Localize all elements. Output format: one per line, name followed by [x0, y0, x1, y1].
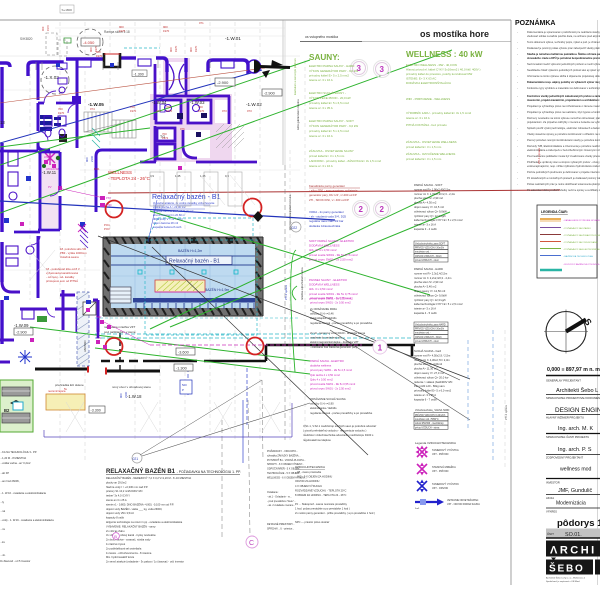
svg-text:VÝKON GENERÁTOR PARY - 9,0 kW: VÝKON GENERÁTOR PARY - 9,0 kW [309, 69, 358, 73]
svg-text:1: 1 [378, 343, 383, 353]
svg-text:1,45: 1,45 [175, 174, 181, 178]
svg-text:prívodny kábel E> 5 x 6,5 mm2: prívodny kábel E> 5 x 6,5 mm2 [309, 101, 349, 105]
svg-text:-1.W.01: -1.W.01 [225, 36, 241, 41]
svg-text:-: - [517, 87, 518, 90]
svg-text:-: - [517, 139, 518, 142]
svg-text:C: C [249, 540, 254, 547]
svg-text:Dokumentácia je spracovaná v p: Dokumentácia je spracovaná v podrobnosti… [527, 30, 600, 34]
svg-text:kapacity 8 osôb: kapacity 8 osôb [106, 516, 125, 520]
svg-text:prívod svetla SW01 - 2x 0,75 m: prívod svetla SW01 - 2x 0,75 mm2 [310, 296, 352, 300]
svg-text:2x mlln'as d'abu: 2x mlln'as d'abu [106, 529, 125, 533]
svg-text:-: - [517, 161, 518, 164]
svg-text:PARNÁ SAUNA - ELEKTRO: PARNÁ SAUNA - ELEKTRO [310, 359, 344, 363]
svg-text:objemt vody VN1 3,5m3: objemt vody VN1 3,5m3 [106, 511, 134, 515]
svg-text:ODVOD ZA HODINU: ODVOD ZA HODINU [295, 479, 319, 483]
svg-text:Ing. arch. M. K: Ing. arch. M. K [558, 426, 593, 432]
svg-text:PARNÁ SAUNA - SOFT: PARNÁ SAUNA - SOFT [414, 183, 443, 187]
svg-text:SPRCHY - 8 X OBJEM VÝMENY...: SPRCHY - 8 X OBJEM VÝMENY... [267, 463, 304, 466]
svg-text:- ak.1 - Ovladanie - m...: - ak.1 - Ovladanie - m... [267, 495, 292, 498]
svg-text:Pierový potreban nosnými konšt: Pierový potreban nosnými konštrukciami s… [527, 138, 600, 142]
svg-text:TANIEROVÝ VYÚSTKA: TANIEROVÝ VYÚSTKA [432, 449, 459, 452]
svg-text:prístrojová manipulačná rovina: prístrojová manipulačná rovina [288, 194, 292, 230]
svg-text:Pri odovzdaní diela predložiť: Pri odovzdaní diela predložiť všetky rev… [527, 188, 600, 192]
svg-text:- BAZÉNOVÁ TECHNOLÓGIA: - BAZÉNOVÁ TECHNOLÓGIA [563, 255, 593, 258]
svg-text:prívod kábel E> 3 x 1,5 mm: prívod kábel E> 3 x 1,5 mm [406, 145, 442, 149]
svg-text:PV: PV [48, 185, 52, 189]
svg-text:...ns: ...ns [0, 528, 6, 531]
svg-text:pôdorys 1.PP: pôdorys 1.PP [557, 518, 600, 529]
svg-text:SOFT PARNÁ SAUNA - ELEKTRO: SOFT PARNÁ SAUNA - ELEKTRO [309, 239, 355, 243]
svg-text:-: - [517, 183, 518, 186]
svg-text:rozmer int I> 4,30x2,70 / 2,3: rozmer int I> 4,30x2,70 / 2,3m [414, 358, 451, 362]
svg-text:kapacita bazéna 8 osôb: kapacita bazéna 8 osôb [153, 225, 182, 229]
svg-text:-: - [517, 133, 518, 136]
svg-text:...ks: ...ks [0, 540, 5, 544]
svg-text:Spoločnosť je zapísaná v OR Me: Spoločnosť je zapísaná v OR Med. [546, 580, 580, 583]
svg-text:Nezrovnalosti medzi výkresmi j: Nezrovnalosti medzi výkresmi jednotlivýc… [527, 62, 600, 66]
svg-text:- ROZVODY BAZÉNOVEJ TECHNOLÓGI: - ROZVODY BAZÉNOVEJ TECHNOLÓGIE [563, 263, 600, 266]
svg-text:ističe gabriel elent cisterna: ističe gabriel elent cisterna [296, 99, 300, 130]
svg-text:pod palištiadom v stene: pod palištiadom v stene [104, 330, 136, 334]
svg-text:4 X OBJEM VÝDUCHU: 4 X OBJEM VÝDUCHU [295, 484, 322, 488]
svg-text:-2.900: -2.900 [217, 80, 229, 85]
svg-text:DESIGN ENGIN: DESIGN ENGIN [555, 407, 600, 414]
svg-text:dodávka wellness: dodávka wellness [310, 364, 332, 368]
svg-text:regulátor tlaku max 3/2 bar: regulátor tlaku max 3/2 bar [309, 219, 343, 223]
svg-text:B2: B2 [4, 408, 10, 413]
svg-text:- POŽIADAVKY NA STAVBU: - POŽIADAVKY NA STAVBU [563, 227, 591, 230]
svg-text:520: 520 [182, 383, 187, 387]
svg-text:1970: 1970 [119, 29, 126, 33]
svg-text:1970: 1970 [198, 109, 205, 113]
svg-text:priehradka EU sklene: priehradka EU sklene [55, 383, 84, 387]
svg-text:Legenda VZDUCHOTECHNIKA: Legenda VZDUCHOTECHNIKA [415, 441, 456, 445]
svg-text:1970: 1970 [58, 111, 65, 115]
svg-text:-4.050: -4.050 [83, 40, 95, 45]
svg-text:- odoslanie čas čiastená gener: - odoslanie čas čiastená generátor pary [310, 345, 358, 349]
svg-text:-1.W.11: -1.W.11 [42, 170, 57, 175]
svg-text:2: 2 [380, 205, 385, 214]
svg-text:objem sauny V> 12,50 m3: objem sauny V> 12,50 m3 [414, 289, 446, 293]
svg-text:-: - [517, 111, 518, 114]
svg-text:Kanalizácia parny generátor: Kanalizácia parny generátor [309, 184, 345, 188]
svg-text:...ab FP: ...ab FP [0, 471, 9, 475]
svg-text:- ak. 2 ovladanie merané...: - ak. 2 ovladanie merané... [267, 504, 296, 507]
svg-text:istenie a> 3 x 16 A: istenie a> 3 x 16 A [406, 116, 430, 120]
svg-text:prívodny kábel E> 5 x 2,5 mm2: prívodny kábel E> 5 x 2,5 mm2 [309, 129, 349, 133]
svg-text:1972: 1972 [162, 136, 169, 140]
svg-text:2x dvoch lavice - vysavač, núr: 2x dvoch lavice - vysavač, núrdta vody [106, 538, 151, 542]
svg-text:prietory S1 10,2 m3/h/230V 3/N: prietory S1 10,2 m3/h/230V 3/N [106, 489, 142, 493]
svg-text:odvod 250/320 - medzistrop: odvod 250/320 - medzistrop [415, 422, 444, 425]
svg-text:VZT - ODVOD PARNA SAUNA: VZT - ODVOD PARNA SAUNA [447, 503, 480, 506]
svg-text:DODÁVKA ELEKTROINŠTALÁCIA: DODÁVKA ELEKTROINŠTALÁCIA [406, 80, 451, 85]
svg-text:...ná: ...ná [0, 509, 6, 513]
svg-text:Rozmery nevsledné na tomto výk: Rozmery nevsledné na tomto výkrese nemož… [527, 116, 600, 120]
svg-text:- POŽIADAVKY NA VYKUROVANIE: - POŽIADAVKY NA VYKUROVANIE [563, 241, 598, 244]
svg-text:plochy an 29,0m2: plochy an 29,0m2 [106, 480, 127, 484]
svg-text:Pas profil L20 - 80kg sam.: Pas profil L20 - 80kg sam. [414, 384, 445, 388]
svg-text:Ing. arch. P. S: Ing. arch. P. S [558, 447, 592, 453]
svg-text:BAZÉN H=1,2m: BAZÉN H=1,2m [178, 248, 202, 253]
svg-text:PO3: PO3 [104, 227, 110, 231]
svg-text:objem sauny V> 10,5 m3: objem sauny V> 10,5 m3 [414, 205, 444, 209]
svg-text:- zh - studená voda 3/4', D25: - zh - studená voda 3/4', D25 [309, 215, 346, 219]
svg-text:Dokumentáciu resp. нápisy polo: Dokumentáciu resp. нápisy položky vo výk… [527, 80, 600, 84]
svg-text:SPRCHA I., II. - priestor...: SPRCHA I., II. - priestor... [267, 527, 294, 530]
svg-text:ODSÁVANIE SUCHÁ SAUNA: ODSÁVANIE SUCHÁ SAUNA [310, 397, 346, 401]
svg-text:istenie a> 3 x 16 A: istenie a> 3 x 16 A [309, 164, 333, 168]
svg-text:NPC --- priestor právo otvárať: NPC --- priestor právo otvárať [295, 520, 329, 524]
svg-text:riešenie > sálavé (bad/400V 3/: riešenie > sálavé (bad/400V 3/N [414, 380, 452, 384]
svg-text:ELEKTRO SUCHÁ SAUNY -: ELEKTRO SUCHÁ SAUNY - [309, 91, 346, 95]
svg-text:1 hod. počas prevádzke a po pr: 1 hod. počas prevádzke a po prevádzke 1 … [295, 507, 350, 511]
svg-text:prívod svetla SW01 - 3E 5x 0,7: prívod svetla SW01 - 3E 5x 0,75 mm2 [309, 292, 358, 296]
svg-text:rýchlosť pary Q> 12,3 kg/h: rýchlosť pary Q> 12,3 kg/h [414, 214, 446, 218]
svg-text:900: 900 [89, 47, 93, 52]
svg-text:JAVISKO: JAVISKO [83, 340, 87, 352]
svg-text:kábel technológia CYKY E> 5 x: kábel technológia CYKY E> 5 x 2,5 mm2 [414, 302, 463, 306]
svg-text:regulácia časová - počas preva: regulácia časová - počas prevažizky a po… [310, 321, 373, 325]
svg-text:-2.900: -2.900 [16, 331, 27, 335]
svg-text:kábel technológia CYKY E> 5 x: kábel technológia CYKY E> 5 x 2,5 mm2 [414, 218, 463, 222]
svg-text:VÝKON GENERÁTOR PARY - 9,0 kW: VÝKON GENERÁTOR PARY - 9,0 kW [309, 124, 358, 128]
svg-text:Projektant je vyhradzuje právo: Projektant je vyhradzuje právo na realiz… [527, 110, 600, 114]
svg-text:Informácia na tomto výkrese sl: Informácia na tomto výkrese slúžia k obj… [527, 74, 600, 78]
svg-text:Projektant je vyhradzuje právo: Projektant je vyhradzuje právo na rozhod… [527, 104, 600, 108]
svg-text:P: P [182, 388, 184, 392]
svg-text:2x podrhlašková sel osvietlaňa: 2x podrhlašková sel osvietlaňa [106, 546, 142, 550]
svg-text:1970: 1970 [194, 45, 198, 52]
svg-text:DODÁVKA WELLNESS: DODÁVKA WELLNESS [309, 283, 340, 287]
svg-text:Pozície jednotlivých predmetov: Pozície jednotlivých predmetov je defino… [527, 170, 600, 174]
svg-text:Dodávateľ je povinný pošas výk: Dodávateľ je povinný pošas výkonu prác z… [527, 46, 600, 50]
svg-text:Tento dokument výkres, technic: Tento dokument výkres, technický popis, … [527, 40, 600, 44]
svg-text:rozmer int I> 1,76x2,30 /2,3: rozmer int I> 1,76x2,30 /2,3 - 2,4m [414, 192, 456, 196]
svg-text:-1.300: -1.300 [134, 73, 144, 77]
svg-text:-2.900: -2.900 [264, 92, 275, 96]
svg-text:odľučky S.H.+=2,46: odľučky S.H.+=2,46 [310, 312, 334, 316]
svg-text:-: - [517, 127, 518, 130]
svg-text:prívod svetla SW01 - 3E 5x 0,7: prívod svetla SW01 - 3E 5x 0,75 mm2 [309, 253, 358, 257]
svg-text:-: - [517, 105, 518, 108]
svg-text:prívod vzpru SW01 - 2x 0,50 mm: prívod vzpru SW01 - 2x 0,50 mm2 [310, 301, 351, 305]
svg-text:nový otvor v obvodovej stene: nový otvor v obvodovej stene [112, 385, 151, 389]
svg-text:medzistor vzduchotechnika odve: medzistor vzduchotechnika odvetranie med… [303, 433, 374, 437]
svg-text:2x ODSÁVANIE PARA: 2x ODSÁVANIE PARA [310, 307, 337, 311]
svg-text:ČNIT: ČNIT [547, 531, 554, 536]
svg-text:regulovateľnou klapkou: regulovateľnou klapkou [303, 438, 331, 442]
svg-text:- pred prevádzkou "biele"...: - pred prevádzkou "biele"... [267, 500, 296, 503]
svg-text:množstvo vzd. -: množstvo vzd. - [415, 332, 431, 335]
svg-text:-: - [517, 177, 518, 180]
svg-text:071: 071 [199, 21, 204, 25]
svg-text:WELLNESS - 6 X OBJEM VÝMENY...: WELLNESS - 6 X OBJEM VÝMENY... [267, 476, 307, 479]
svg-text:Pri dosiahnutých a montážnych: Pri dosiahnutých a montážnych prácach je… [527, 176, 600, 180]
svg-text:...Jo.: ...Jo. [0, 553, 6, 557]
svg-text:istenie a> 3 x 35 A: istenie a> 3 x 35 A [309, 106, 333, 110]
svg-text:plocha A> 11,30 m2: plocha A> 11,30 m2 [414, 367, 438, 371]
svg-text:prívodny kábel E> 5 x 2,5 mm2: prívodny kábel E> 5 x 2,5 mm2 [309, 74, 349, 78]
svg-text:odľučky S.H.+=2,90: odľučky S.H.+=2,90 [310, 402, 334, 406]
svg-text:Pri ... Stakopruď - sauna nesm: Pri ... Stakopruď - sauna nesmiete prevá… [295, 502, 348, 506]
svg-text:PRÍVOD VZDUCHU 30m3/h: PRÍVOD VZDUCHU 30m3/h [415, 328, 445, 331]
svg-text:DODÁVKA WELLNESS: DODÁVKA WELLNESS [309, 244, 340, 248]
svg-text:Rampa sklon 1:18: Rampa sklon 1:18 [104, 30, 130, 34]
svg-text:kapacita 6 - 7 osôb: kapacita 6 - 7 osôb [414, 397, 437, 401]
svg-text:výhrievací výkon Q> 9,0kW: výhrievací výkon Q> 9,0kW [414, 293, 447, 297]
svg-text:Počas realizačných prác je nut: Počas realizačných prác je nutné dodržia… [527, 182, 600, 186]
svg-text:-: - [517, 63, 518, 66]
svg-text:VODA - 2x parny generátor: VODA - 2x parny generátor [309, 210, 344, 214]
svg-text:Ovladanie:: Ovladanie: [267, 491, 279, 494]
svg-text:900: 900 [169, 47, 173, 52]
svg-text:SAUNY:: SAUNY: [309, 53, 340, 62]
svg-text:POZNÁMKA: POZNÁMKA [515, 18, 555, 27]
svg-text:2TI-1 oprava: 2TI-1 oprava [537, 148, 541, 164]
svg-text:rozmer ext R> 2,3x2,4/2,5m: rozmer ext R> 2,3x2,4/2,5m [414, 271, 448, 275]
svg-text:projektantom. Za prípadné odch: projektantom. Za prípadné odchýlky v mer… [527, 120, 600, 124]
svg-text:- POŽIADAVKY NA ZDRAVOTECHNIKU: - POŽIADAVKY NA ZDRAVOTECHNIKU [563, 234, 600, 237]
svg-text:ATE1: ATE1 [44, 155, 51, 159]
svg-text:VÝKRES: VÝKRES [546, 510, 557, 514]
svg-text:stenie an 3 x 25 A: stenie an 3 x 25 A [106, 498, 127, 502]
svg-text:osadenie do zariadený vzt: osadenie do zariadený vzt [310, 336, 341, 340]
svg-text:2x sensť atrakcie (ovladanie -: 2x sensť atrakcie (ovladanie - 3x palozo… [106, 560, 184, 564]
svg-text:prívod VZDUCH - otvor: prívod VZDUCH - otvor [415, 340, 439, 343]
svg-text:prívodný kábel do priestoru, p: prívodný kábel do priestoru, polohy konz… [406, 72, 473, 76]
svg-text:SM2: SM2 [96, 315, 102, 319]
svg-text:-1.X.02: -1.X.02 [44, 75, 59, 80]
svg-text:Kontrolóre všetky jednotlivých: Kontrolóre všetky jednotlivých zabudovan… [527, 94, 600, 98]
svg-text:ŠEBO: ŠEBO [549, 562, 585, 575]
svg-text:-: - [517, 117, 518, 120]
svg-text:istenie a> 3 x 16 A: istenie a> 3 x 16 A [414, 307, 436, 311]
svg-text:1970: 1970 [174, 45, 178, 52]
svg-text:výhrievací výkon Q> 20,0 kw: výhrievací výkon Q> 20,0 kw [414, 375, 448, 379]
svg-text:množstvo vzd. 75/50°C: množstvo vzd. 75/50°C [415, 418, 439, 421]
svg-text:LADIOPAD - prívodny kábel - ZÁ: LADIOPAD - prívodny kábel - ZÁSUVKA E> 3… [309, 159, 381, 163]
svg-text:-: - [517, 81, 518, 84]
svg-text:SUCHÁ SAUNA - hard: SUCHÁ SAUNA - hard [414, 349, 442, 353]
svg-text:PITNÁ FONTÁNA - bez prívodu: PITNÁ FONTÁNA - bez prívodu [406, 123, 447, 127]
svg-text:rýchlosť pary Q> 12,3 kg/h: rýchlosť pary Q> 12,3 kg/h [414, 298, 446, 302]
svg-text:ELEKTRO PARNA SAUNY - HARD: ELEKTRO PARNA SAUNY - HARD [309, 64, 354, 68]
svg-text:ZTI-1 oprava: ZTI-1 oprava [284, 285, 288, 300]
svg-text:PO1: PO1 [94, 167, 100, 171]
svg-text:prívod vzpru SW01 - 2x 2,50 mm: prívod vzpru SW01 - 2x 2,50 mm2 [310, 387, 351, 391]
svg-text:-: - [517, 155, 518, 158]
svg-text:množstvo vzd. -: množstvo vzd. - [415, 251, 431, 254]
svg-text:prívod kábel E> 3 x 1,5 mm: prívod kábel E> 3 x 1,5 mm [406, 157, 442, 161]
svg-text:istenie a> 3 x 35 A: istenie a> 3 x 35 A [414, 393, 436, 397]
svg-text:074: 074 [156, 109, 161, 113]
svg-text:izolačná sauna: izolačná sauna [60, 255, 79, 259]
svg-text:os vstupného mostíka: os vstupného mostíka [305, 35, 338, 39]
svg-text:-: - [517, 31, 518, 34]
svg-text:073: 073 [222, 109, 227, 113]
svg-text:0,9: 0,9 [225, 174, 229, 178]
svg-text:generátor pary, DU 1/2', v>400: generátor pary, DU 1/2', v>400 od FP [309, 193, 357, 197]
svg-text:PRÍVOD VZDUCHU 120m3/h: PRÍVOD VZDUCHU 120m3/h [415, 414, 446, 417]
svg-text:900: 900 [119, 393, 123, 398]
svg-text:-1.W.18: -1.W.18 [127, 394, 142, 399]
svg-text:073: 073 [247, 109, 252, 113]
svg-text:rozmer ext R> 1,90x2,40/2,5m: rozmer ext R> 1,90x2,40/2,5m [414, 187, 451, 191]
svg-text:1970: 1970 [46, 25, 50, 31]
svg-text:Rozvody T2B, Elektroinštalácie: Rozvody T2B, Elektroinštalácie a Uzemnen… [527, 144, 600, 148]
svg-text:Relaxačný bazén - B1: Relaxačný bazén - B1 [169, 259, 220, 265]
svg-text:021: 021 [133, 457, 139, 461]
svg-text:Vzduchotechnika_para SOFT: Vzduchotechnika_para SOFT [415, 242, 446, 245]
svg-text:2: 2 [359, 205, 364, 214]
svg-text:S/H3820: S/H3820 [20, 37, 33, 41]
svg-text:INVESTOR: INVESTOR [546, 481, 560, 485]
svg-text:kapacita 4 - 5 osôb: kapacita 4 - 5 osôb [414, 311, 437, 315]
svg-text:plocha A> 5,40 m2: plocha A> 5,40 m2 [414, 285, 437, 289]
svg-text:-: - [517, 145, 518, 148]
svg-text:-3.300: -3.300 [91, 409, 101, 413]
svg-text:Vzduchotechnika_ SAUNA HARD: Vzduchotechnika_ SAUNA HARD [415, 409, 450, 412]
svg-text:tesber' 3x 4,0 /CYKY: tesber' 3x 4,0 /CYKY [106, 494, 130, 498]
svg-text:prístupové som od PITNÁ: prístupové som od PITNÁ [46, 279, 78, 283]
svg-text:Relaxačný bazén - B1: Relaxačný bazén - B1 [152, 194, 221, 201]
svg-text:atrakcia bazéna 23 P, 19 P (4: atrakcia bazéna 23 P, 19 P (4) m2 [153, 209, 194, 213]
svg-text:GENERÁLNY PROJEKTANT: GENERÁLNY PROJEKTANT [546, 379, 581, 383]
svg-text:Vzduchotechnika_para HARD: Vzduchotechnika_para HARD [415, 323, 446, 326]
svg-text:13: 13 [0, 120, 5, 125]
svg-text:- KANALIZÁCIE POTRUBIE SPLAŠKO: - KANALIZÁCIE POTRUBIE SPLAŠKOVEJ [563, 219, 600, 222]
svg-text:1x tlačcvé trysvé: 1x tlačcvé trysvé [106, 542, 126, 546]
svg-text:prívod VZDUCH - otvor: prívod VZDUCH - otvor [415, 259, 439, 262]
svg-text:PARNÁ SAUNA - HARD: PARNÁ SAUNA - HARD [414, 267, 443, 271]
svg-text:B: B [114, 534, 117, 539]
svg-text:1970: 1970 [96, 54, 103, 58]
svg-text:STENOVÁ MRIEŽKA: STENOVÁ MRIEŽKA [432, 466, 456, 469]
svg-text:prívod pary SW01 - 2E 5x 2,5 m: prívod pary SW01 - 2E 5x 2,5 mm2 [310, 368, 352, 372]
svg-text:...am hod 26006,: ...am hod 26006, [0, 479, 20, 483]
svg-text:Hlavný prívod el. kábel CYKY 5: Hlavný prívod el. kábel CYKY 5x16mm2 ( 4… [406, 68, 481, 72]
svg-text:PSY: PSY [106, 196, 111, 200]
svg-text:1970: 1970 [130, 109, 137, 113]
svg-text:-: - [517, 69, 518, 72]
svg-text:ODVOD VZDUCH - 30m3: ODVOD VZDUCH - 30m3 [415, 256, 442, 258]
svg-text:AKCIA: AKCIA [546, 496, 554, 500]
svg-text:ZÁSUVKA - OSVETLENIE SAUNY: ZÁSUVKA - OSVETLENIE SAUNY [309, 149, 354, 153]
svg-text:POŽIADAVKY - VZDUCHO...: POŽIADAVKY - VZDUCHO... [267, 450, 298, 453]
svg-text:rozmer int I> 2,2x2,3/2,3 - 2: rozmer int I> 2,2x2,3/2,3 - 2,4m [414, 276, 452, 280]
svg-text:2x mokré parny generátor - prí: 2x mokré parny generátor - prílbe prevád… [295, 511, 375, 515]
svg-text:VÝROBNÍK ĽADU - prívodny kábel: VÝROBNÍK ĽADU - prívodny kábel E> 3x 1,5… [406, 111, 472, 115]
svg-text:Neodkladne hlásiť výkazom jedn: Neodkladne hlásiť výkazom jednotlivých p… [527, 68, 600, 72]
svg-text:3: 3 [380, 65, 385, 74]
svg-text:-: - [517, 75, 518, 78]
svg-text:Architekti Šebo L: Architekti Šebo L [556, 387, 598, 394]
svg-text:- sifon Ø50 - samozapáram vyči: - sifon Ø50 - samozapáram vyčistenie [309, 189, 358, 193]
svg-text:1970: 1970 [166, 109, 173, 113]
svg-text:1970: 1970 [163, 29, 170, 33]
svg-text:POTVRDIŤ B1 - VODNÁ PLOCHA...: POTVRDIŤ B1 - VODNÁ PLOCHA... [267, 459, 306, 462]
svg-text:JMF, Gundulič: JMF, Gundulič [558, 488, 592, 494]
svg-text:2100: 2100 [90, 155, 94, 162]
svg-text:VZT - PRÍVOD: VZT - PRÍVOD [432, 453, 449, 456]
svg-text:900: 900 [41, 26, 45, 31]
svg-text:átrijporte technológie na úrov: átrijporte technológie na úrovni 1 pp - … [106, 520, 183, 524]
svg-text:všetkovať súhlas na každé použ: všetkovať súhlas na každé použité diela,… [527, 34, 600, 38]
svg-text:plocha stien S> 4,04m2: plocha stien S> 4,04m2 [414, 362, 443, 366]
svg-text:WIFI - PRIPOJENIE - WELLNESS: WIFI - PRIPOJENIE - WELLNESS [406, 97, 450, 101]
svg-text:0x Záscvač - url 5 Investor: 0x Záscvač - url 5 Investor [0, 559, 31, 563]
svg-text:-: - [517, 189, 518, 192]
svg-text:...1,20 M - 8 MIESTNA: ...1,20 M - 8 MIESTNA [0, 456, 26, 460]
svg-text:VZT - ODVOD: VZT - ODVOD [432, 487, 448, 490]
svg-text:VZT - PRÍVOD: VZT - PRÍVOD [432, 470, 449, 473]
svg-text:2x vzt - tanierový ventil D100: 2x vzt - tanierový ventil D100 - dodávka… [310, 331, 366, 335]
svg-text:ELEKTRO WELLNESS - RW - 40,0 K: ELEKTRO WELLNESS - RW - 40,0 KW [406, 63, 457, 67]
svg-text:prívod vzpru SW01 - 2x 2,50 mm: prívod vzpru SW01 - 2x 2,50 mm2 [309, 257, 353, 261]
svg-text:plocha stien S> 2,90 m2: plocha stien S> 2,90 m2 [414, 280, 443, 284]
svg-text:0,9: 0,9 [150, 174, 154, 178]
svg-text:022: 022 [292, 226, 298, 230]
svg-text:VÝKON PECE PROFI - 20,0 kW: VÝKON PECE PROFI - 20,0 kW [309, 96, 351, 100]
svg-text:mriežka odpočiváreň mučna: mriežka odpočiváreň mučna [300, 267, 304, 300]
svg-text:os mostíka hore: os mostíka hore [420, 29, 489, 39]
svg-text:LEGENDA ČIAR:: LEGENDA ČIAR: [541, 209, 568, 214]
svg-text:DETAILNÉ PRIESTORY...: DETAILNÉ PRIESTORY... [267, 523, 295, 526]
svg-text:prívod kábel E> 3 x 1,5 mm: prívod kábel E> 3 x 1,5 mm [309, 154, 345, 158]
svg-text:ZÁSUVKA - OZVUČENIE WELLNESS: ZÁSUVKA - OZVUČENIE WELLNESS [406, 151, 455, 156]
svg-text:076: 076 [180, 127, 185, 131]
svg-text:ištb. 24 4 x 0,50 mm2: ištb. 24 4 x 0,50 mm2 [309, 248, 337, 252]
svg-text:( otvoril prehrlateľný vzduchu: ( otvoril prehrlateľný vzduchu - rekuper… [303, 429, 366, 433]
svg-text:...vody - 1. W.16 - oviadanie: ...vody - 1. W.16 - oviadanie a elektroi… [0, 518, 54, 522]
svg-text:TECHNOLÓGIE - 5 X OBJEM...: TECHNOLÓGIE - 5 X OBJEM... [267, 472, 301, 475]
svg-text:SO.01.: SO.01. [565, 532, 582, 538]
svg-text:-1.W.02: -1.W.02 [246, 102, 262, 107]
svg-text:VETRANIE ODVETRÁVATEĽ: VETRANIE ODVETRÁVATEĽ [447, 499, 479, 502]
svg-text:PANNEJ SAUNY - ELEKTRO: PANNEJ SAUNY - ELEKTRO [309, 278, 348, 282]
svg-text:- TEPLOTA 24 - 26°C: - TEPLOTA 24 - 26°C [108, 176, 150, 181]
svg-text:8 OBJEM ZA HODINU - TEPLOTA 24: 8 OBJEM ZA HODINU - TEPLOTA 24 - 26°C [295, 493, 347, 497]
svg-text:Všetky stavebné úpravy je potr: Všetky stavebné úpravy je potrebné konšt… [527, 132, 600, 136]
svg-text:obvod bazéna hm 20,80 m: obvod bazéna hm 20,80 m [153, 213, 186, 217]
svg-text:...vodka vodna - an' 0,2m2: ...vodka vodna - an' 0,2m2 [0, 461, 31, 465]
svg-text:ZÁSUVKA - OSVETLENIE WELLNESS: ZÁSUVKA - OSVETLENIE WELLNESS [406, 140, 457, 144]
svg-text:výhrievací výkon Q> 9,0kW: výhrievací výkon Q> 9,0kW [414, 209, 447, 213]
svg-text:dodávka zdravotechnika: dodávka zdravotechnika [309, 224, 341, 228]
svg-text:PNO: PNO [106, 203, 112, 207]
svg-text:Architekti Šebo Lichý s.r.o.,: Architekti Šebo Lichý s.r.o., Wolkerova … [546, 577, 586, 580]
svg-text:Qdo taviča 4 x 0,50 mm2: Qdo taviča 4 x 0,50 mm2 [310, 373, 340, 377]
svg-text:prívod VZDUCH - stena: prívod VZDUCH - stena [415, 426, 440, 429]
svg-text:PRÍVOD VZDUCHU 30m3/h: PRÍVOD VZDUCHU 30m3/h [415, 247, 445, 250]
svg-text:objem sauny V> 27,0 m3: objem sauny V> 27,0 m3 [414, 371, 444, 375]
svg-text:-: - [517, 95, 518, 98]
svg-text:900: 900 [85, 157, 89, 162]
svg-text:elektromagnetická klapka - dod: elektromagnetická klapka - dodávka VZT [310, 340, 359, 344]
svg-text:prívod svetla SW01 - 3E 5x 0,5: prívod svetla SW01 - 3E 5x 0,55 mm2 [310, 382, 356, 386]
svg-text:TANIEROVÝ VYÚSTOK: TANIEROVÝ VYÚSTOK [432, 483, 459, 486]
svg-text:Spôsob použiť výstroj technoló: Spôsob použiť výstroj technológie, elekt… [527, 126, 600, 130]
svg-text:1x lavice - ozžuchová lenza -: 1x lavice - ozžuchová lenza - 8 miestna [106, 551, 152, 555]
svg-text:WELLNESS : 40 kW: WELLNESS : 40 kW [406, 50, 483, 59]
svg-text:ZTI-1 oprava: ZTI-1 oprava [504, 405, 508, 420]
svg-text:vodná plocha A > 23,00 m2: vodná plocha A > 23,00 m2 [153, 205, 186, 209]
svg-text:V.S1.1, V.S2.1 medzistrop such: V.S1.1, V.S2.1 medzistrop suchých saun j… [303, 424, 377, 428]
svg-text:ΛRCHI: ΛRCHI [550, 545, 597, 557]
svg-text:investormi, projekt-manažérmi,: investormi, projekt-manažérmi, projektan… [527, 98, 600, 102]
svg-text:074: 074 [90, 107, 95, 111]
